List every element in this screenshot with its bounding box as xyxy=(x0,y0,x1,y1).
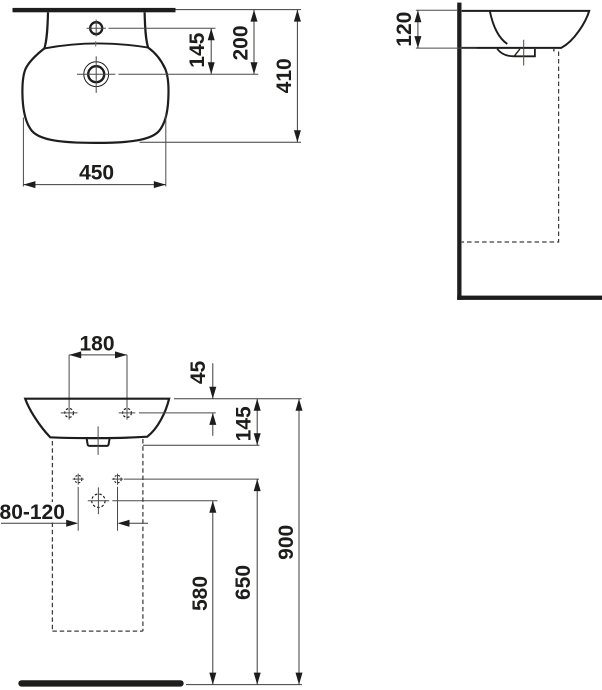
svg-text:450: 450 xyxy=(79,162,114,185)
svg-text:80-120: 80-120 xyxy=(0,501,65,524)
svg-text:145: 145 xyxy=(233,406,256,441)
svg-text:45: 45 xyxy=(187,361,210,385)
svg-text:900: 900 xyxy=(275,525,298,560)
svg-text:580: 580 xyxy=(189,576,212,611)
svg-text:145: 145 xyxy=(186,32,209,67)
svg-text:650: 650 xyxy=(232,565,255,600)
svg-text:410: 410 xyxy=(273,58,296,93)
svg-text:200: 200 xyxy=(230,25,253,60)
svg-text:120: 120 xyxy=(393,12,416,47)
svg-text:180: 180 xyxy=(79,333,114,356)
